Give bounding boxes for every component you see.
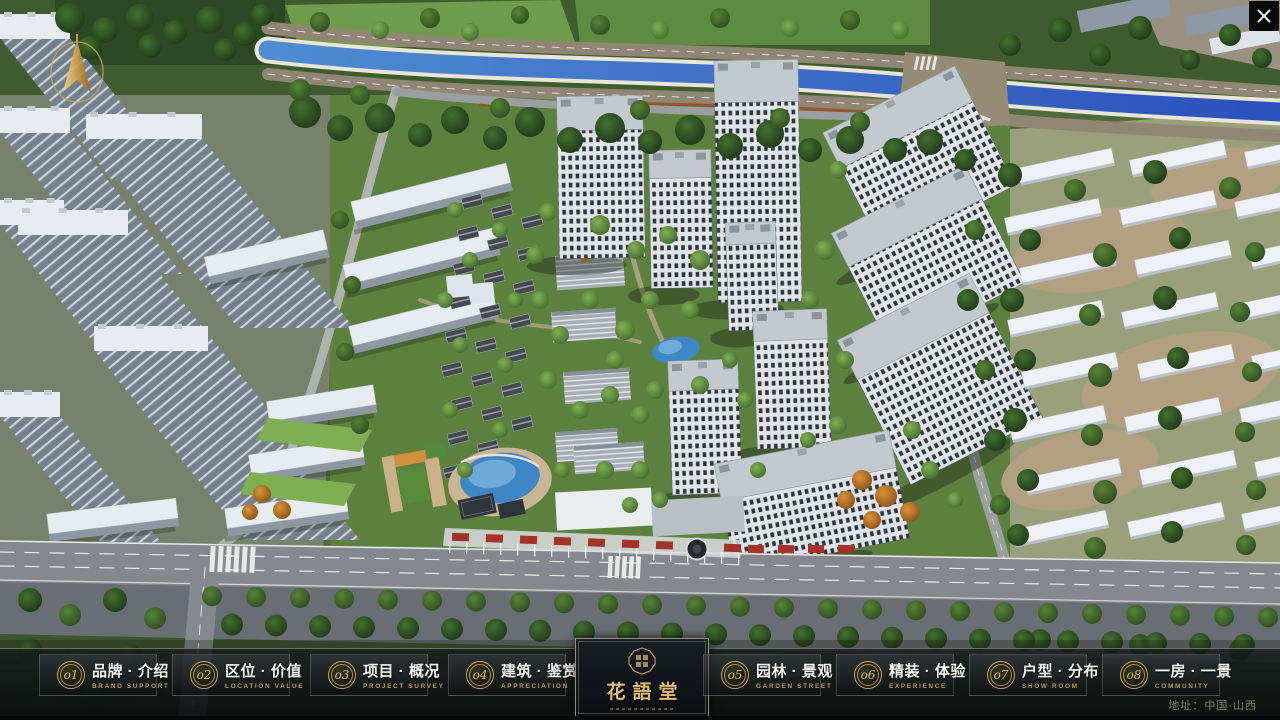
nav-number-badge: o6 (854, 661, 882, 689)
seal-icon (627, 646, 657, 676)
address-text: 地址：中国·山西 (1168, 697, 1257, 713)
nav-label-zh: 区位 · 价值 (225, 660, 289, 681)
nav-item-landscape[interactable]: o5 园林 · 景观 GARDEN STREET (703, 654, 821, 696)
nav-item-floorplan-distribution[interactable]: o7 户型 · 分布 SHOW ROOM (969, 654, 1087, 696)
project-name: 花語堂 (599, 677, 684, 704)
nav-item-project-overview[interactable]: o3 项目 · 概况 PROJECT SURVEY (310, 654, 428, 696)
nav-number-badge: o1 (57, 661, 85, 689)
logo-subtitle-line (610, 708, 674, 710)
nav-label-en: APPRECIATION (501, 683, 565, 690)
nav-number-badge: o4 (466, 661, 494, 689)
nav-label-en: BRAND SUPPORT (92, 683, 156, 690)
nav-label-zh: 户型 · 分布 (1022, 660, 1086, 681)
project-logo-inner: 花語堂 (578, 641, 706, 714)
nav-number-badge: o7 (987, 661, 1015, 689)
close-button[interactable] (1249, 1, 1279, 31)
nav-item-room-view[interactable]: o8 一房 · 一景 COMMUNITY (1102, 654, 1220, 696)
nav-label-zh: 建筑 · 鉴赏 (501, 660, 565, 681)
nav-label-zh: 园林 · 景观 (756, 660, 820, 681)
nav-item-location-value[interactable]: o2 区位 · 价值 LOCATION VALUE (172, 654, 290, 696)
nav-label-zh: 项目 · 概况 (363, 660, 427, 681)
bottom-nav-bar: o1 品牌 · 介绍 BRAND SUPPORT o2 区位 · 价值 LOCA… (0, 648, 1280, 720)
nav-label-en: SHOW ROOM (1022, 683, 1086, 690)
nav-item-architecture[interactable]: o4 建筑 · 鉴赏 APPRECIATION (448, 654, 566, 696)
nav-label-zh: 精装 · 体验 (889, 660, 953, 681)
nav-label-en: GARDEN STREET (756, 683, 820, 690)
nav-label-en: COMMUNITY (1155, 683, 1219, 690)
nav-label-zh: 一房 · 一景 (1155, 660, 1219, 681)
project-logo[interactable]: 花語堂 (575, 638, 709, 717)
presentation-window: o1 品牌 · 介绍 BRAND SUPPORT o2 区位 · 价值 LOCA… (0, 0, 1280, 720)
close-icon (1256, 8, 1272, 24)
nav-label-en: LOCATION VALUE (225, 683, 289, 690)
nav-label-en: EXPERIENCE (889, 683, 953, 690)
masterplan-3d-view[interactable] (0, 0, 1280, 720)
nav-item-brand-intro[interactable]: o1 品牌 · 介绍 BRAND SUPPORT (39, 654, 157, 696)
nav-item-interior-experience[interactable]: o6 精装 · 体验 EXPERIENCE (836, 654, 954, 696)
nav-number-badge: o3 (328, 661, 356, 689)
nav-number-badge: o8 (1120, 661, 1148, 689)
nav-number-badge: o2 (190, 661, 218, 689)
nav-number-badge: o5 (721, 661, 749, 689)
nav-label-zh: 品牌 · 介绍 (92, 660, 156, 681)
nav-label-en: PROJECT SURVEY (363, 683, 427, 690)
